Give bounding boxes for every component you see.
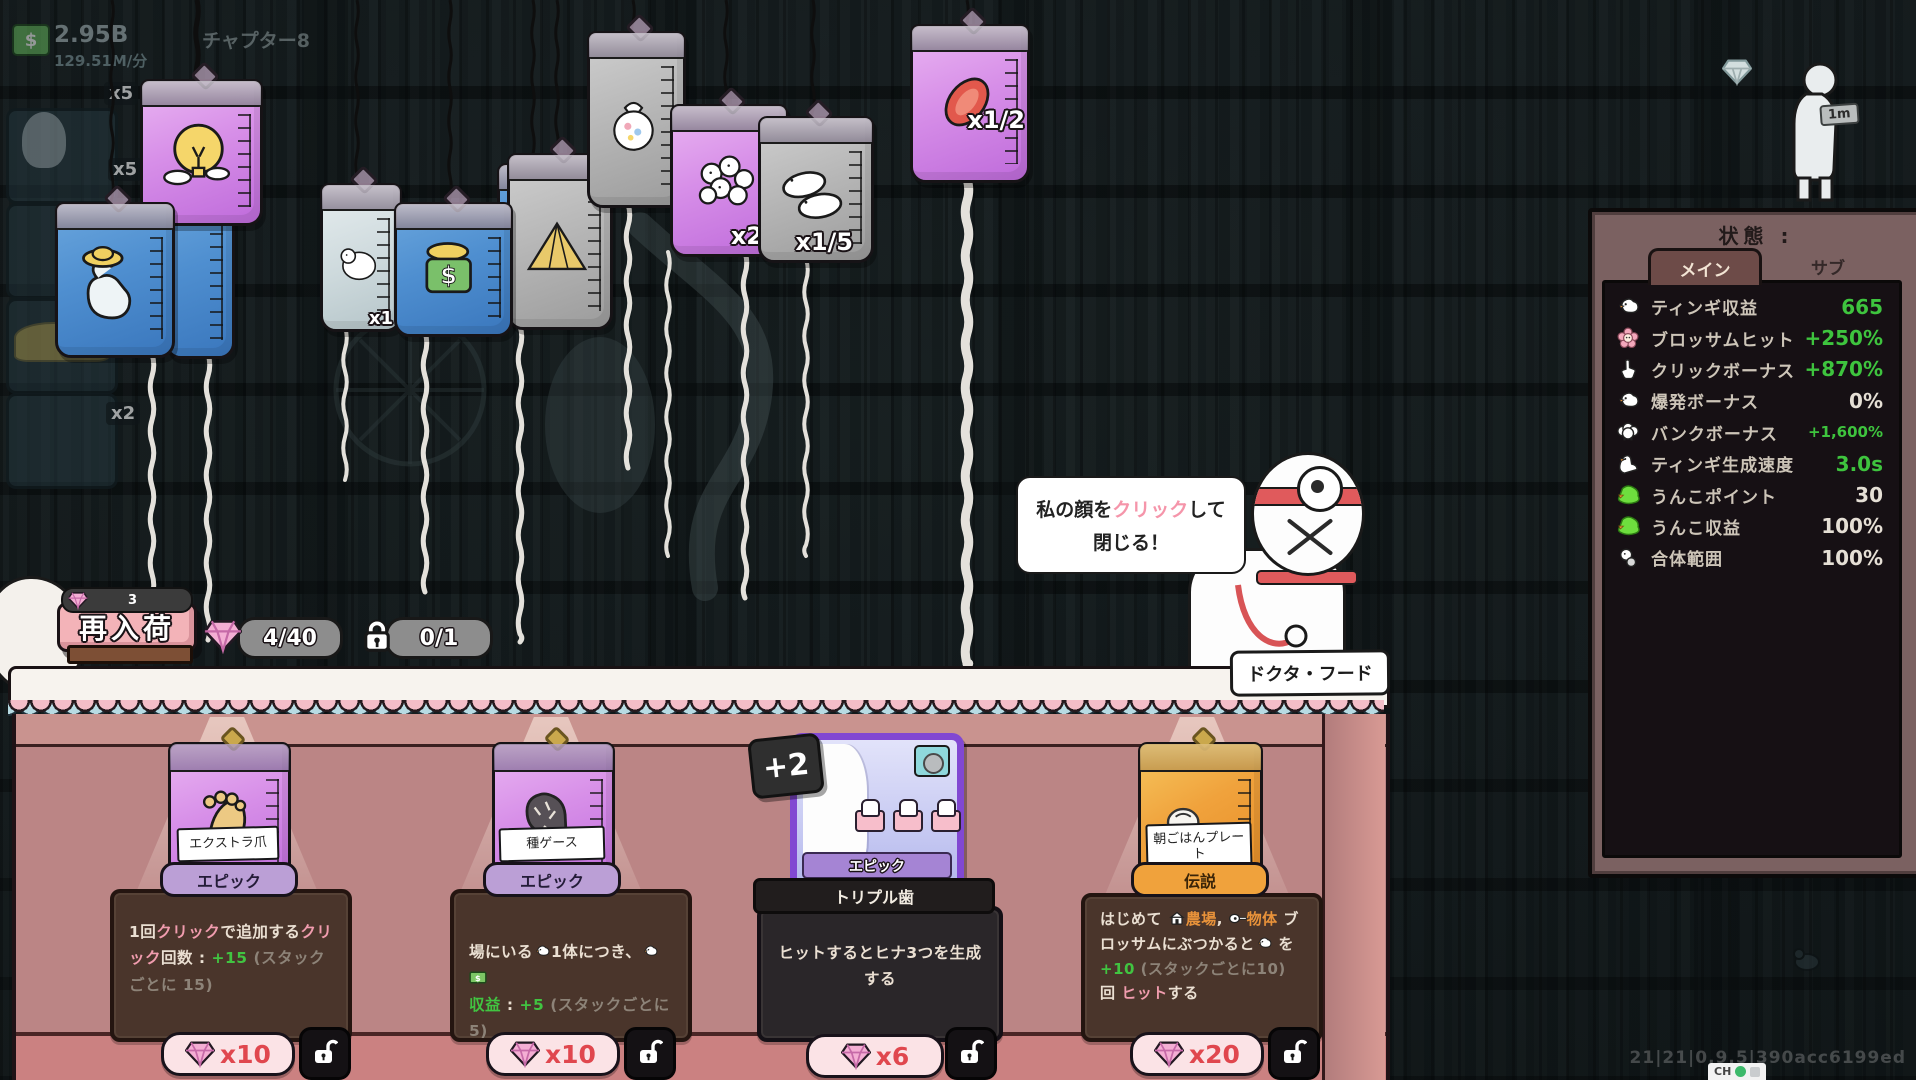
slot-count-badge: x5 xyxy=(108,158,142,181)
game-screen: $ 2.95B 129.51M/分 チャプター8 x5 x5 x2 x1 xyxy=(0,0,1916,1080)
portrait-icon xyxy=(914,745,950,777)
item-description-board: 場にいる1体につき、$収益 : +5 (スタックごとに5) xyxy=(450,889,692,1042)
status-row: うんこポイント30 xyxy=(1605,479,1899,510)
item-price: x6 xyxy=(876,1042,910,1071)
pyramid-icon xyxy=(518,174,596,317)
lock-toggle-button[interactable] xyxy=(1268,1027,1320,1080)
status-label: ティンギ収益 xyxy=(1651,294,1833,319)
lock-toggle-button[interactable] xyxy=(945,1027,997,1080)
item-price: x10 xyxy=(545,1040,596,1069)
status-value: +250% xyxy=(1804,326,1883,350)
duck-silhouette xyxy=(1792,946,1822,972)
distance-chip: 1m xyxy=(1819,103,1859,127)
desc-segment: を xyxy=(1273,935,1294,953)
desc-segment: クリック xyxy=(156,923,220,941)
restock-wood-base xyxy=(67,645,193,664)
rarity-pill: エピック xyxy=(160,862,298,897)
status-label: 合体範囲 xyxy=(1651,545,1813,570)
money-rate: 129.51M/分 xyxy=(54,50,147,71)
svg-text:$: $ xyxy=(440,262,456,290)
bird-icon xyxy=(1255,934,1273,949)
desc-segment: で追加する xyxy=(220,923,300,941)
item-description: ヒットするとヒナ3つを生成する xyxy=(761,910,999,993)
bag-multiplier: x1 xyxy=(369,308,393,329)
stack-badge: +2 xyxy=(747,732,825,799)
ch-chip[interactable]: CH xyxy=(1708,1063,1766,1080)
sidebar-creature xyxy=(22,112,66,168)
farm-icon xyxy=(1168,909,1186,924)
desc-segment: +10 xyxy=(1100,960,1135,978)
item-price: x10 xyxy=(220,1040,271,1069)
status-label: クリックボーナス xyxy=(1651,357,1796,382)
status-label: うんこ収益 xyxy=(1651,514,1813,539)
tooth-icon xyxy=(893,810,923,832)
slot-count-badge: x2 xyxy=(106,402,140,425)
status-label: ブロッサムヒット xyxy=(1651,326,1796,351)
shop-right-wall xyxy=(1322,714,1385,1080)
doctor-name-tag: ドクタ・フード xyxy=(1230,649,1390,696)
blossom-icon xyxy=(1613,327,1643,349)
desc-segment: ヒット xyxy=(1121,984,1168,1002)
tooth-icon xyxy=(855,810,885,832)
head-mirror-icon xyxy=(1297,466,1343,512)
status-title: 状態 : xyxy=(1592,220,1916,249)
status-row: クリックボーナス+870% xyxy=(1605,354,1899,385)
tooth-icon xyxy=(931,810,961,832)
status-row: 合体範囲100% xyxy=(1605,542,1899,573)
gem-counter: 4/40 xyxy=(263,626,317,651)
flexing-character-icon xyxy=(66,223,158,345)
buy-button[interactable]: x10 xyxy=(161,1032,295,1076)
item-name-label: 種ゲース xyxy=(499,826,606,863)
desc-segment: (スタックごとに10) xyxy=(1135,960,1286,978)
unlock-icon xyxy=(312,1037,338,1071)
gem-outline-icon xyxy=(1722,58,1752,86)
desc-segment: , xyxy=(1217,910,1229,928)
item-description-board: ヒットするとヒナ3つを生成する xyxy=(757,906,1003,1042)
doctor-x-mouth xyxy=(1284,514,1336,560)
gem-icon xyxy=(510,1040,540,1068)
gem-icon xyxy=(68,591,88,610)
guitar-icon xyxy=(1229,909,1247,924)
status-label: ティンギ生成速度 xyxy=(1651,451,1828,476)
status-rows: ティンギ収益665ブロッサムヒット+250%クリックボーナス+870%爆発ボーナ… xyxy=(1602,280,1902,858)
item-name-label: エクストラ爪 xyxy=(177,826,280,863)
hanging-bag-polar-bear[interactable]: x1 xyxy=(320,183,402,332)
money-amount: 2.95B xyxy=(54,22,128,48)
lock-counter-pill: 0/1 xyxy=(385,617,493,659)
goose-icon xyxy=(1613,453,1643,475)
hand-icon xyxy=(1613,358,1643,380)
status-value: 30 xyxy=(1855,483,1883,507)
tab-main[interactable]: メイン xyxy=(1648,248,1762,285)
background-figure xyxy=(1768,60,1860,202)
gem-icon xyxy=(841,1042,871,1070)
item-description-board: はじめて 農場, 物体 ブロッサムにぶつかると を +10 (スタックごとに10… xyxy=(1081,893,1323,1042)
desc-segment: : xyxy=(501,996,520,1014)
desc-segment: する xyxy=(864,970,896,988)
item-description: はじめて 農場, 物体 ブロッサムにぶつかると を +10 (スタックごとに10… xyxy=(1085,897,1319,1006)
unlock-icon xyxy=(637,1037,663,1071)
desc-segment: 回数 : xyxy=(161,949,212,967)
status-value: 0% xyxy=(1849,389,1883,413)
bubble-line1: 私の顔をクリックして xyxy=(1036,495,1225,522)
gem-icon xyxy=(185,1040,215,1068)
gem-icon xyxy=(1154,1040,1184,1068)
status-row: ティンギ生成速度3.0s xyxy=(1605,448,1899,479)
buy-button[interactable]: x10 xyxy=(486,1032,620,1076)
status-label: バンクボーナス xyxy=(1651,420,1800,445)
bird-icon xyxy=(1613,296,1643,318)
hanging-bag-meat[interactable]: x1/2 xyxy=(910,24,1030,183)
desc-segment: 収益 xyxy=(469,996,501,1014)
desc-segment: 回 xyxy=(1100,984,1121,1002)
sidebar-slot[interactable] xyxy=(6,393,118,489)
desc-segment: +15 xyxy=(212,949,254,967)
bag-multiplier: x1/2 xyxy=(967,106,1025,134)
desc-segment: +5 xyxy=(520,996,551,1014)
buy-button[interactable]: x20 xyxy=(1130,1032,1264,1076)
status-row: うんこ収益100% xyxy=(1605,511,1899,542)
lightbulb-icon xyxy=(151,100,246,213)
item-description-board: 1回クリックで追加するクリック回数 : +15 (スタックごとに 15) xyxy=(110,889,352,1042)
item-price: x20 xyxy=(1189,1040,1240,1069)
bird-icon xyxy=(533,941,551,956)
gem-icon xyxy=(204,618,242,654)
poop-icon xyxy=(1613,515,1643,537)
rarity-pill: 伝説 xyxy=(1131,862,1269,897)
restock-counter-pill: 3 xyxy=(61,587,193,613)
status-value: 3.0s xyxy=(1836,452,1883,476)
restock-label: 再入荷 xyxy=(79,607,175,647)
hanging-bag-ducks[interactable]: x1/5 xyxy=(758,116,874,263)
unlock-icon xyxy=(958,1037,984,1071)
hanging-bag-money[interactable]: $ xyxy=(394,202,513,337)
status-row: 爆発ボーナス0% xyxy=(1605,385,1899,416)
svg-text:$: $ xyxy=(475,973,481,983)
unlock-icon xyxy=(1281,1037,1307,1071)
desc-segment: 物体 xyxy=(1247,910,1278,928)
lock-toggle-button[interactable] xyxy=(624,1027,676,1080)
poop-icon xyxy=(1613,484,1643,506)
gem-counter-pill: 4/40 xyxy=(237,617,343,659)
status-value: +1,600% xyxy=(1808,423,1883,441)
buy-button[interactable]: x6 xyxy=(806,1034,944,1078)
bird-icon xyxy=(1613,390,1643,412)
status-value: 100% xyxy=(1821,514,1883,538)
status-value: 665 xyxy=(1841,295,1883,319)
desc-segment: はじめて xyxy=(1100,910,1168,928)
status-row: ブロッサムヒット+250% xyxy=(1605,322,1899,353)
bag-multiplier: x1/5 xyxy=(795,228,853,256)
desc-segment: 場にいる xyxy=(469,943,533,961)
status-label: 爆発ボーナス xyxy=(1651,388,1841,413)
lock-toggle-button[interactable] xyxy=(299,1027,351,1080)
slot-count-badge: x5 xyxy=(104,82,138,105)
lock-counter: 0/1 xyxy=(420,626,459,651)
bundle-sack-icon xyxy=(598,52,669,195)
hanging-bag-flexer[interactable] xyxy=(55,202,175,358)
status-value: 100% xyxy=(1821,546,1883,570)
tab-sub[interactable]: サブ xyxy=(1788,254,1868,279)
status-value: +870% xyxy=(1804,357,1883,381)
chapter-label: チャプター8 xyxy=(202,26,310,53)
ch-label: CH xyxy=(1714,1065,1731,1078)
desc-segment: 1体につき、 xyxy=(551,943,641,961)
desc-segment: 1回 xyxy=(129,923,156,941)
bubble-line2: 閉じる！ xyxy=(1093,528,1169,555)
gray-square-icon xyxy=(1750,1067,1760,1077)
status-row: バンクボーナス+1,600% xyxy=(1605,417,1899,448)
desc-segment: ヒットするとヒナ3つを生成 xyxy=(778,944,981,962)
status-row: ティンギ収益665 xyxy=(1605,291,1899,322)
money-character-icon: $ xyxy=(405,223,496,324)
teeth-row xyxy=(855,810,961,832)
speech-bubble: 私の顔をクリックして 閉じる！ xyxy=(1016,476,1246,574)
restock-button[interactable]: 3 再入荷 xyxy=(57,592,197,662)
rarity-pill: エピック xyxy=(483,862,621,897)
item-description: 1回クリックで追加するクリック回数 : +15 (スタックごとに 15) xyxy=(114,893,348,998)
status-panel: 状態 : メイン サブ ティンギ収益665ブロッサムヒット+250%クリックボー… xyxy=(1588,208,1916,878)
green-status-icon xyxy=(1735,1066,1746,1077)
item-description: 場にいる1体につき、$収益 : +5 (スタックごとに5) xyxy=(454,893,688,1044)
lock-icon xyxy=(362,619,392,655)
status-label: うんこポイント xyxy=(1651,483,1847,508)
money-icon: $ xyxy=(469,967,487,982)
merge-icon xyxy=(1613,547,1643,569)
restock-count: 3 xyxy=(88,593,177,608)
sheep-icon xyxy=(1613,421,1643,443)
desc-segment: 農場 xyxy=(1186,910,1217,928)
money-icon: $ xyxy=(12,24,50,56)
rarity-strip: エピック xyxy=(802,852,952,879)
bird-icon xyxy=(641,941,659,956)
polar-bear-icon xyxy=(331,204,385,319)
item-name-bar: トリプル歯 xyxy=(753,878,995,914)
desc-segment: する xyxy=(1168,984,1199,1002)
